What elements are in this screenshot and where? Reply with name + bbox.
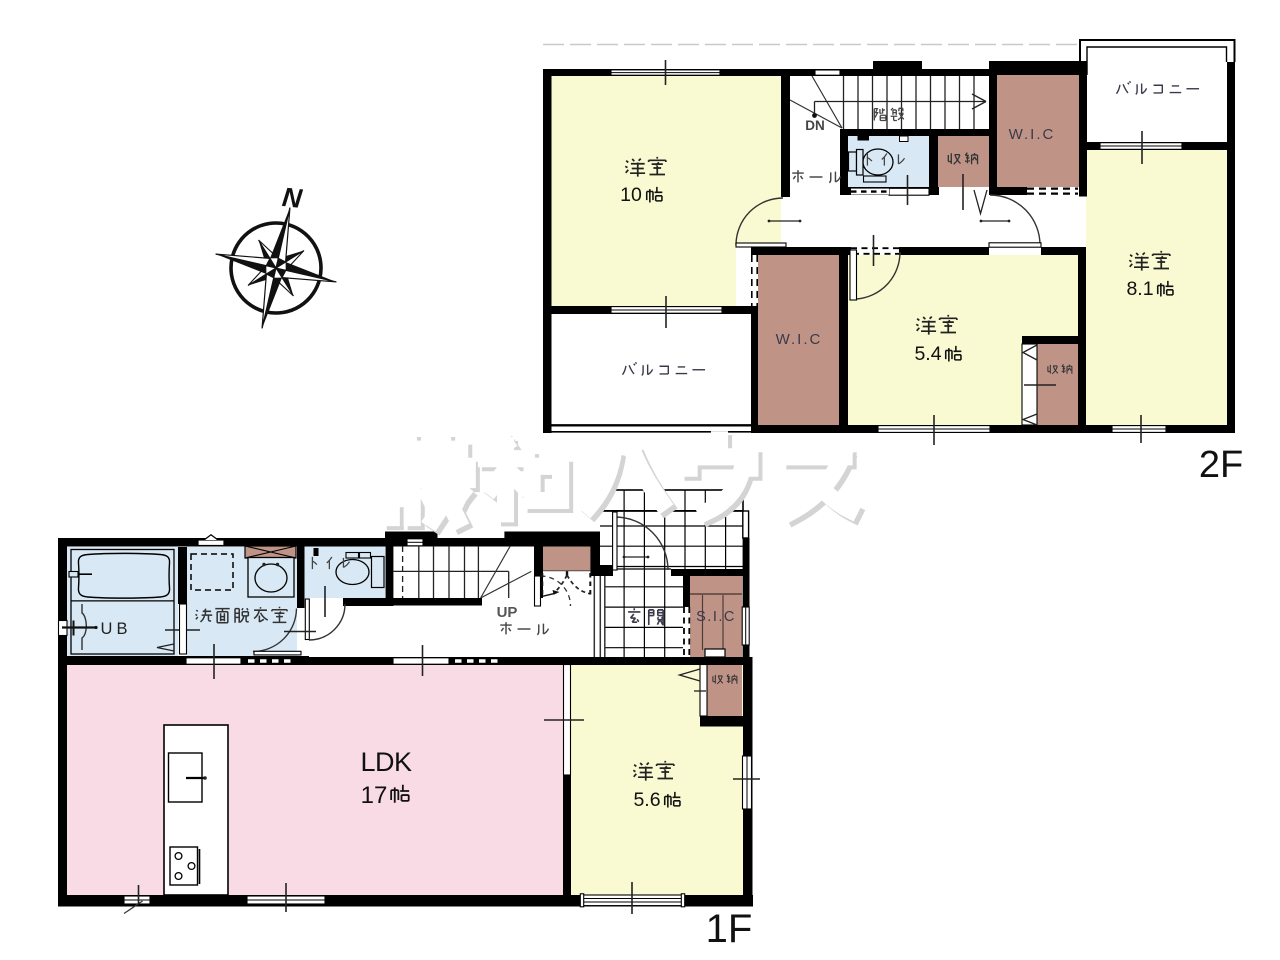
svg-text:W.I.C: W.I.C <box>1009 126 1056 143</box>
svg-text:N: N <box>281 182 304 214</box>
svg-text:1F: 1F <box>706 907 753 951</box>
svg-text:17: 17 <box>361 782 388 809</box>
svg-text:UP: UP <box>497 604 518 621</box>
svg-text:UB: UB <box>101 620 132 638</box>
svg-text:W.I.C: W.I.C <box>776 331 823 348</box>
svg-text:S.I.C: S.I.C <box>696 609 736 625</box>
svg-text:8.1: 8.1 <box>1126 278 1153 300</box>
svg-text:10: 10 <box>620 184 642 206</box>
svg-text:DN: DN <box>805 118 825 133</box>
svg-text:5.4: 5.4 <box>914 343 941 365</box>
svg-text:5.6: 5.6 <box>633 789 660 811</box>
svg-text:2F: 2F <box>1199 444 1243 486</box>
svg-text:LDK: LDK <box>360 747 412 777</box>
